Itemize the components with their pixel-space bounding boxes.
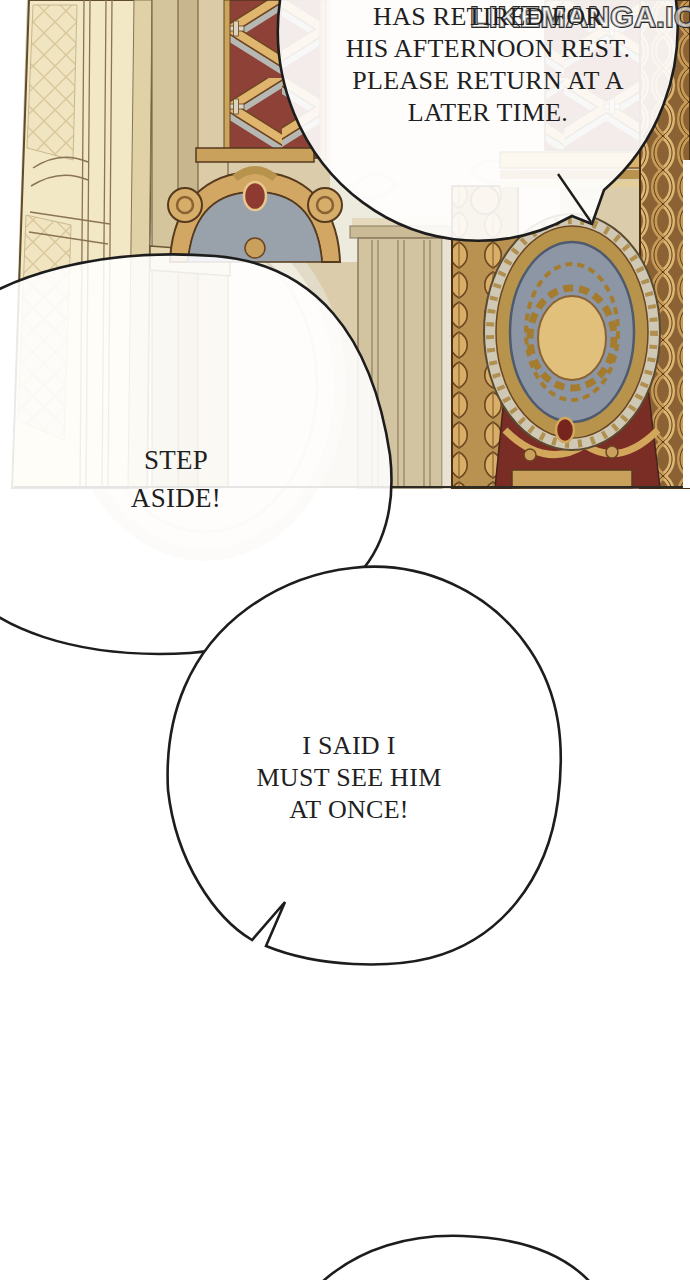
bubble-text-line: HIS AFTERNOON REST. bbox=[338, 33, 638, 65]
bubble-text-line: HAS RETIRED FOR bbox=[338, 1, 638, 33]
panel-artwork: LIKEMANGA.IO bbox=[0, 0, 690, 1280]
bubble-text-line: ASIDE! bbox=[96, 479, 256, 517]
bubble-text-line: STEP bbox=[96, 441, 256, 479]
insist-bubble-text: I SAID I MUST SEE HIM AT ONCE! bbox=[228, 730, 470, 826]
bubble-text-line: PLEASE RETURN AT A bbox=[338, 65, 638, 97]
bubble-text-line: MUST SEE HIM bbox=[228, 762, 470, 794]
step-aside-bubble-text: STEP ASIDE! bbox=[96, 441, 256, 517]
speech-bubble-bottom-partial bbox=[322, 1236, 590, 1280]
bubble-text-line: AT ONCE! bbox=[228, 794, 470, 826]
manga-page: LIKEMANGA.IO HAS RETIRED FOR HIS AFTERNO… bbox=[0, 0, 690, 1280]
right-page-margin bbox=[683, 160, 690, 488]
oval-medallion bbox=[484, 214, 660, 488]
bubble-text-line: I SAID I bbox=[228, 730, 470, 762]
bubble-text-line: LATER TIME. bbox=[338, 97, 638, 129]
announcement-bubble-text: HAS RETIRED FOR HIS AFTERNOON REST. PLEA… bbox=[338, 1, 638, 129]
